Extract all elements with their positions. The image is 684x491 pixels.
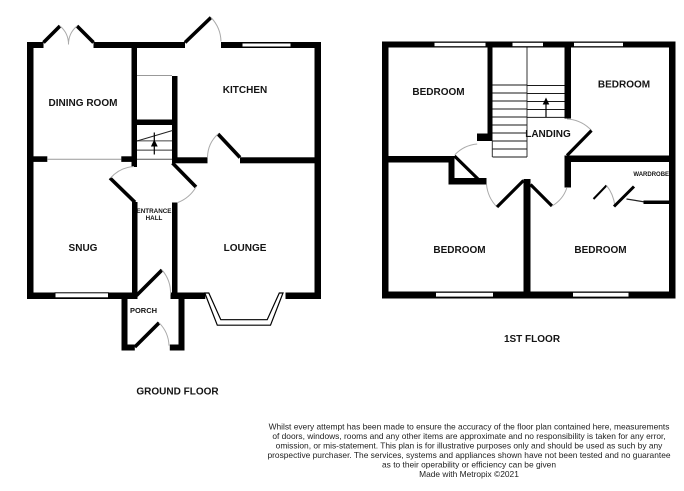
svg-text:BEDROOM: BEDROOM: [574, 245, 626, 256]
svg-text:WARDROBE: WARDROBE: [633, 172, 669, 178]
svg-text:PORCH: PORCH: [130, 306, 157, 315]
svg-text:BEDROOM: BEDROOM: [598, 80, 650, 91]
svg-text:omission, or mis-statement. Th: omission, or mis-statement. This plan is…: [276, 441, 663, 451]
svg-text:HALL: HALL: [146, 215, 163, 222]
svg-text:DINING ROOM: DINING ROOM: [49, 98, 118, 109]
svg-text:GROUND FLOOR: GROUND FLOOR: [136, 387, 219, 398]
svg-text:LANDING: LANDING: [525, 129, 571, 140]
svg-text:ENTRANCE: ENTRANCE: [137, 208, 172, 215]
svg-text:BEDROOM: BEDROOM: [412, 87, 464, 98]
svg-text:as to their operability or eff: as to their operability or efficiency ca…: [382, 460, 556, 470]
svg-text:Whilst every attempt has been: Whilst every attempt has been made to en…: [269, 422, 670, 432]
svg-text:LOUNGE: LOUNGE: [224, 243, 267, 254]
svg-text:SNUG: SNUG: [69, 243, 98, 254]
svg-text:1ST FLOOR: 1ST FLOOR: [504, 334, 561, 345]
svg-text:of doors, windows, rooms and a: of doors, windows, rooms and any other i…: [272, 431, 665, 441]
svg-text:BEDROOM: BEDROOM: [433, 245, 485, 256]
svg-text:KITCHEN: KITCHEN: [223, 85, 267, 96]
svg-text:prospective purchaser. The ser: prospective purchaser. The services, sys…: [267, 450, 670, 460]
svg-text:Made with Metropix ©2021: Made with Metropix ©2021: [419, 469, 519, 479]
